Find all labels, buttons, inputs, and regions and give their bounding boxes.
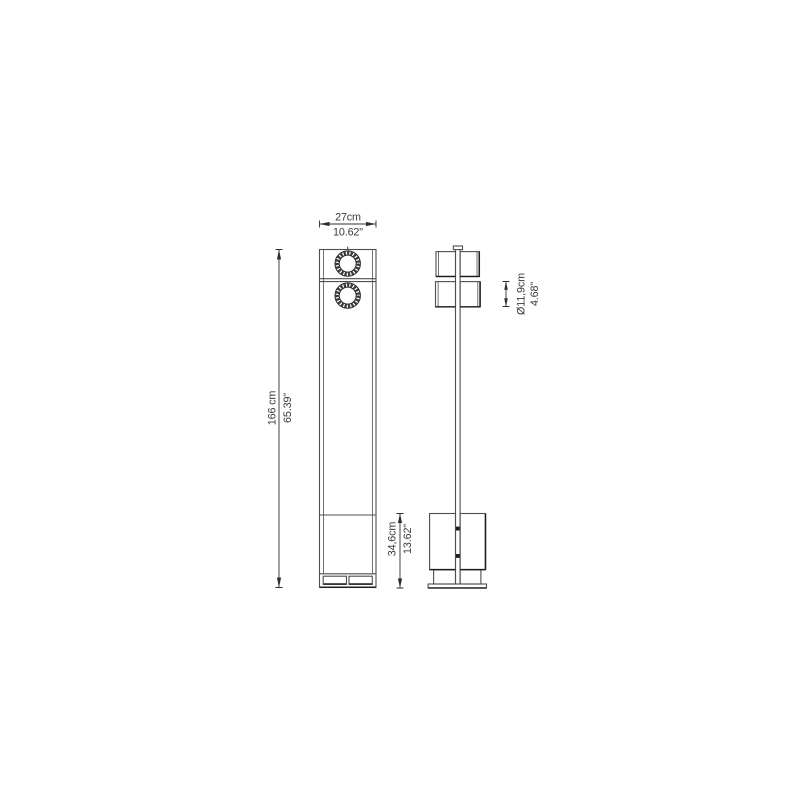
dim-diameter-arrow-bottom	[504, 298, 508, 306]
lens-inner-ring	[339, 287, 356, 304]
front-view	[320, 247, 377, 588]
side-base-box-right	[460, 514, 486, 570]
front-shadow-accents	[320, 584, 376, 587]
lens-hatched-ring	[337, 253, 358, 274]
side-base-box-left	[430, 514, 456, 570]
technical-drawing-page: 27cm 10.62" 166 cm 65.39" 34,6cm 13.62" …	[0, 0, 800, 800]
dim-diameter-inches-label: 4.68"	[529, 282, 541, 306]
dim-base-arrow-top	[398, 514, 402, 524]
dimension-total-height: 166 cm 65.39"	[267, 250, 295, 588]
side-pole-cap	[453, 246, 462, 250]
side-pole	[456, 250, 461, 584]
dim-height-arrow-bottom	[277, 578, 281, 588]
front-strip-panel-left	[323, 576, 346, 584]
dimension-base-height: 34,6cm 13.62"	[387, 514, 415, 589]
side-head-row2-face-lines	[438, 282, 478, 307]
front-body-outline	[320, 250, 377, 588]
dim-width-cm-label: 27cm	[335, 212, 361, 224]
dim-height-inches-label: 65.39"	[282, 393, 294, 423]
front-strip-panel-right	[349, 576, 372, 584]
front-inner-walls	[324, 250, 373, 574]
pole-screw-top	[456, 527, 460, 531]
dimension-width: 27cm 10.62"	[320, 212, 377, 239]
dim-width-inches-label: 10.62"	[333, 226, 363, 238]
side-head-row1-face-lines	[439, 252, 477, 277]
dim-height-arrow-top	[277, 250, 281, 260]
front-lens-top	[335, 251, 360, 276]
side-view	[428, 246, 486, 588]
dim-base-arrow-bottom	[398, 579, 402, 589]
side-plinth-left	[434, 570, 456, 584]
lens-hatched-ring	[337, 285, 358, 306]
pole-screw-bottom	[456, 554, 460, 558]
side-plinth-right	[460, 570, 481, 584]
lens-inner-ring	[339, 255, 356, 272]
front-head-divider	[320, 279, 377, 282]
dim-height-cm-label: 166 cm	[267, 391, 279, 426]
dim-diameter-arrow-top	[504, 282, 508, 290]
bollard-lamp-dimension-drawing: 27cm 10.62" 166 cm 65.39" 34,6cm 13.62" …	[0, 0, 800, 800]
side-head-box-row2-right	[460, 282, 480, 307]
front-lens-bottom	[335, 283, 360, 308]
dim-diameter-cm-label: Ø11,9cm	[516, 273, 528, 315]
dim-width-arrow-right	[366, 222, 376, 226]
dim-base-cm-label: 34,6cm	[387, 522, 399, 557]
dimension-spot-diameter: Ø11,9cm 4.68"	[503, 273, 542, 315]
side-head-box-row1-right	[460, 252, 479, 277]
dim-base-inches-label: 13.62"	[402, 524, 414, 554]
dim-width-arrow-left	[320, 222, 330, 226]
